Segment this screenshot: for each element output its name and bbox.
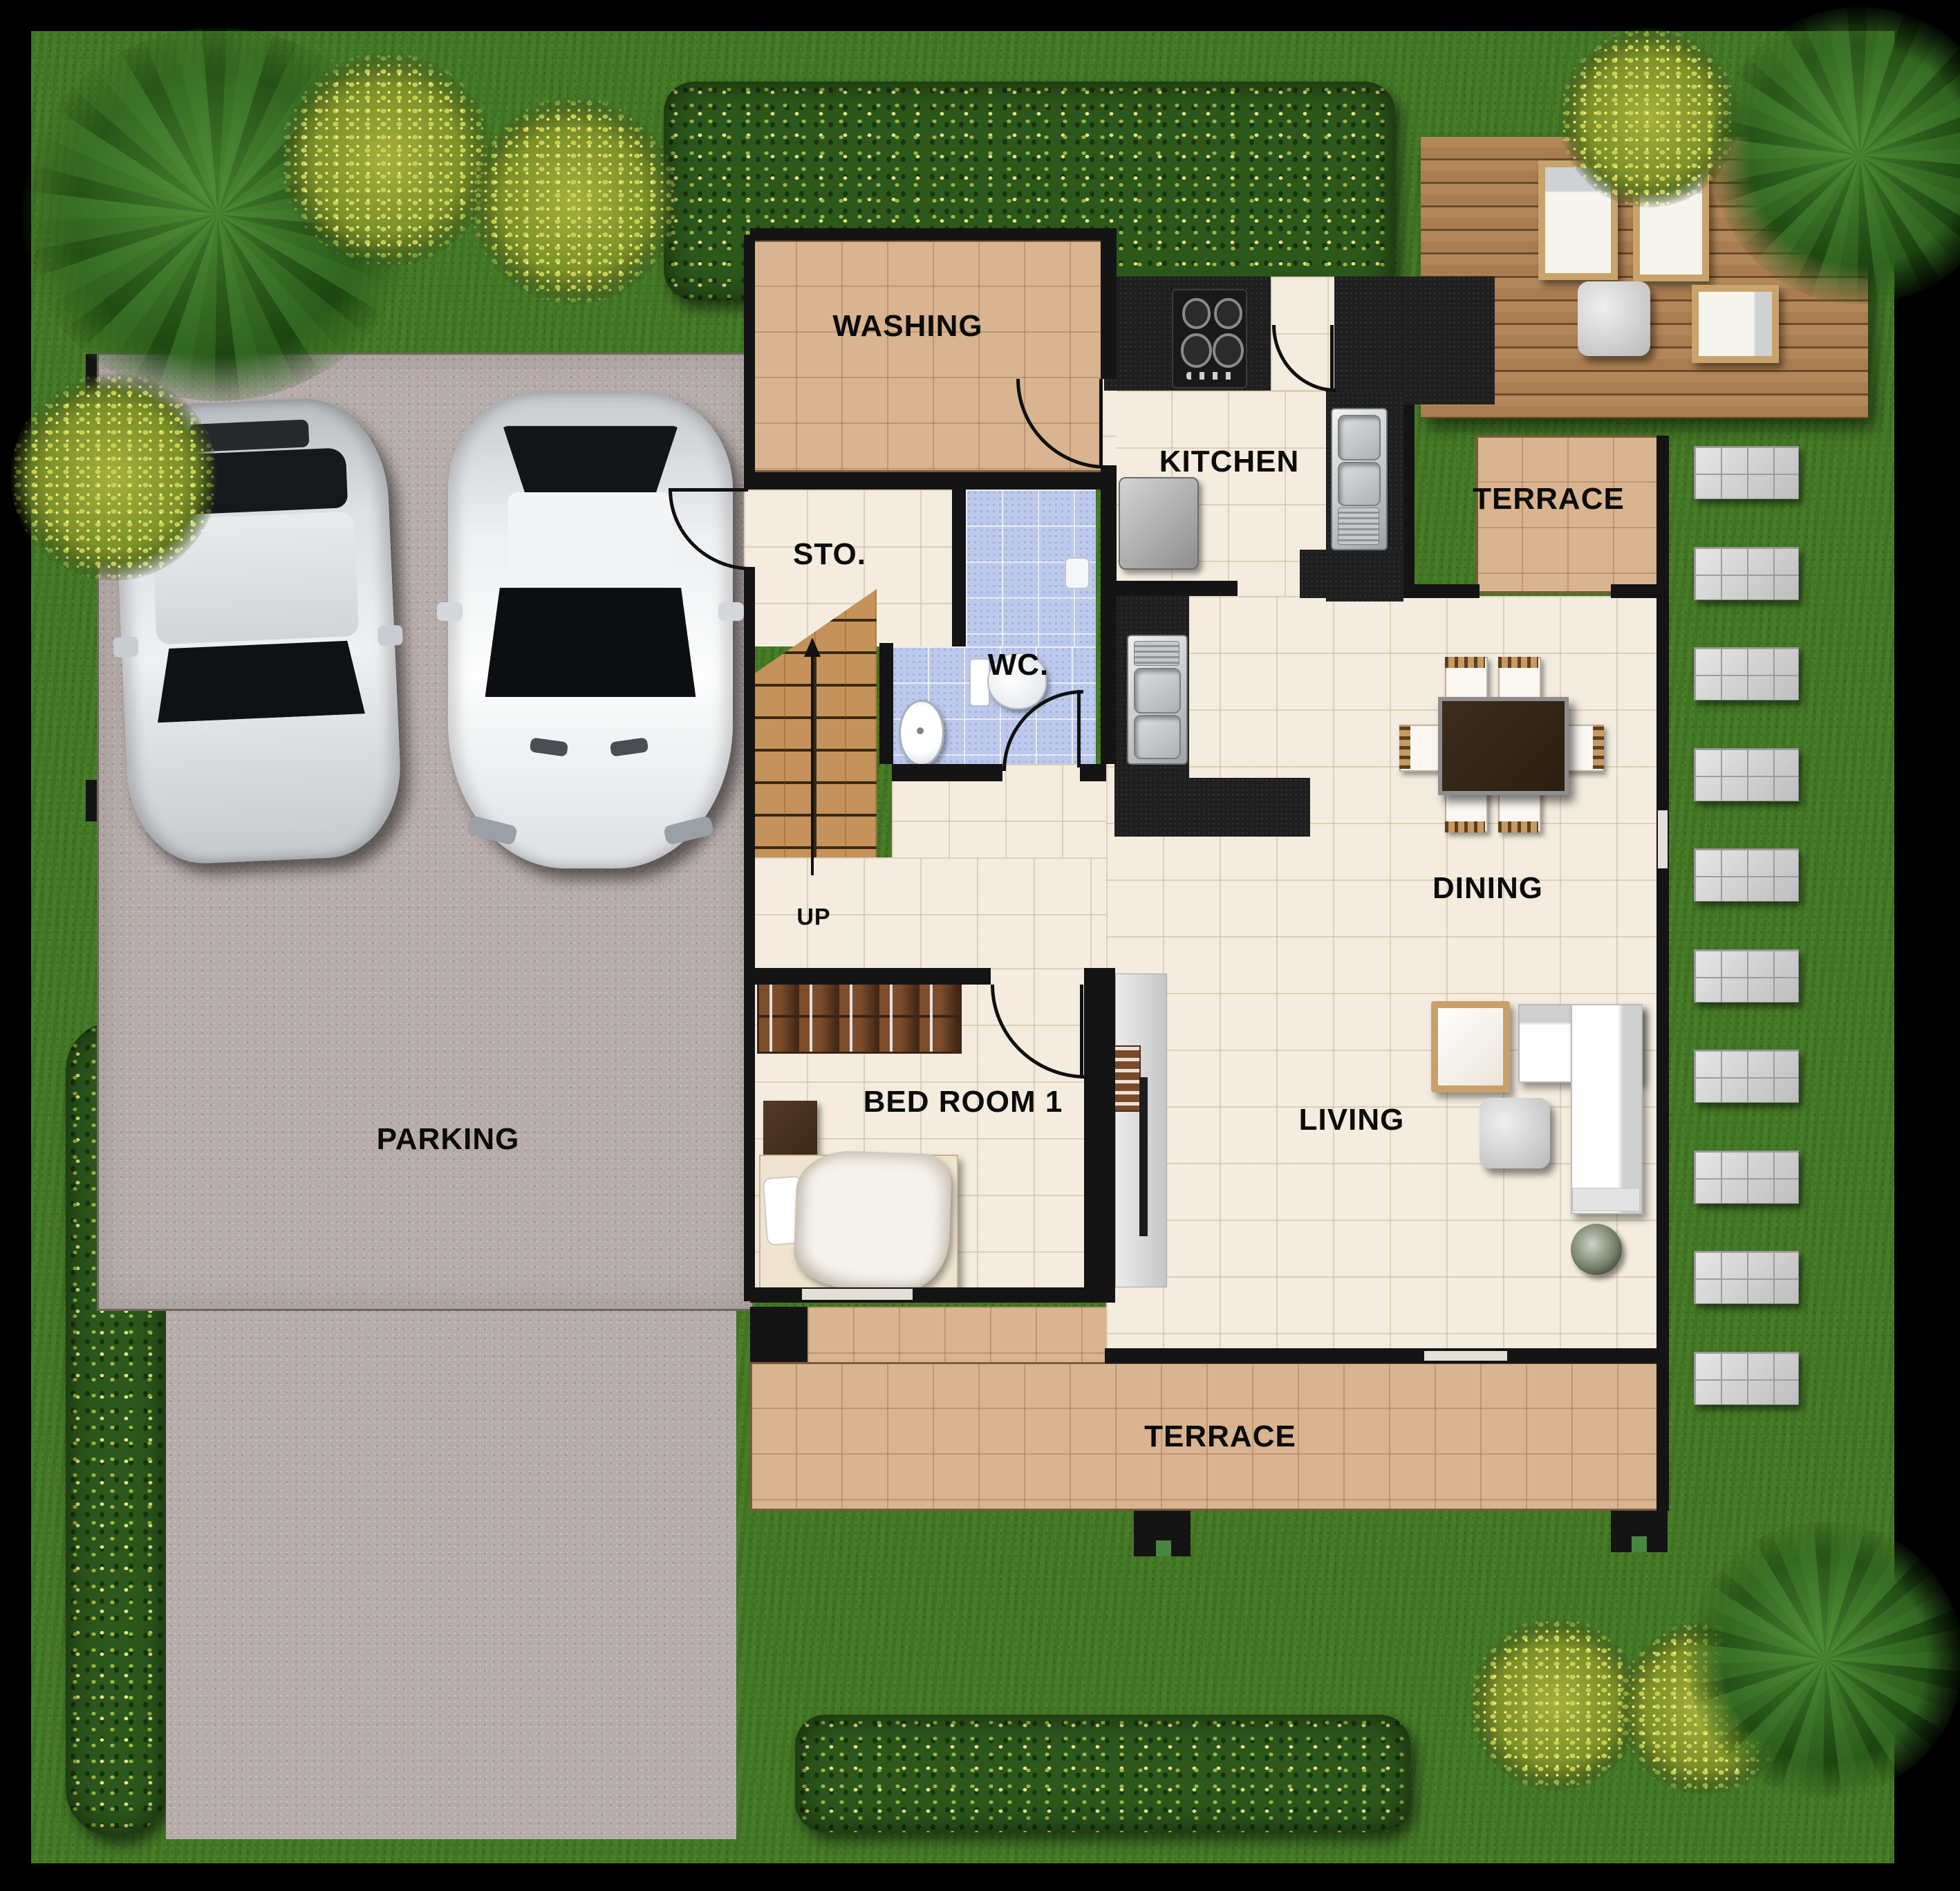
wardrobe <box>757 982 962 1054</box>
hob-burner-2 <box>1214 298 1243 328</box>
label-kitchen: KITCHEN <box>1159 445 1300 479</box>
potted-plant <box>1571 1224 1622 1275</box>
hob-knobs <box>1186 372 1233 380</box>
dining-chair-6 <box>1562 725 1604 772</box>
window-living <box>1424 1351 1507 1361</box>
door-leaf-storage-exterior <box>669 488 748 492</box>
hob-burner-4 <box>1213 333 1244 368</box>
dining-chair-1 <box>1445 657 1488 702</box>
stepping-stone-8 <box>1694 1151 1799 1204</box>
coffee-table <box>1480 1098 1550 1168</box>
stairs-arrow-line <box>811 655 814 875</box>
window-bedroom <box>802 1289 913 1300</box>
dining-table <box>1438 697 1569 795</box>
sofa-end-armrest <box>1572 1188 1640 1211</box>
kitchen-sink-right <box>1331 408 1388 550</box>
stairs-arrow-head <box>804 637 821 657</box>
wall-shelf <box>1065 557 1090 589</box>
bush-yellow-bottom-1 <box>1469 1618 1642 1791</box>
wall-left-lower <box>744 567 755 1301</box>
island-sink <box>1127 635 1188 765</box>
car-sports-windshield <box>485 588 696 697</box>
bed-duvet <box>793 1149 953 1293</box>
hob-burner-3 <box>1181 333 1213 368</box>
kitchen-hob <box>1172 289 1247 389</box>
wall-kitchen-left-lower <box>1101 465 1117 764</box>
label-bedroom: BED ROOM 1 <box>864 1085 1063 1119</box>
car-sedan-windshield <box>154 640 365 723</box>
sink-basin <box>1134 715 1181 759</box>
label-living: LIVING <box>1299 1103 1405 1137</box>
terrace-corner-wall <box>750 1307 808 1362</box>
bush-yellow-top-1 <box>280 52 494 266</box>
label-washing: WASHING <box>832 309 982 344</box>
label-parking: PARKING <box>377 1122 520 1157</box>
door-leaf-washing <box>1099 379 1103 465</box>
dining-chair-5 <box>1399 725 1441 772</box>
chimney-block <box>1403 277 1495 404</box>
stepping-stone-9 <box>1694 1251 1799 1304</box>
wall-bedroom-top <box>750 968 991 985</box>
deck-lounger-3 <box>1692 285 1779 363</box>
label-dining: DINING <box>1432 871 1543 906</box>
car-sports-rear-window <box>499 426 682 492</box>
bush-yellow-top-2 <box>470 97 678 304</box>
wall-bedroom-living <box>1084 968 1115 1287</box>
label-storage: STO. <box>793 537 866 572</box>
kitchen-counter-top-2 <box>1334 277 1403 391</box>
sink-drainboard <box>1134 641 1179 666</box>
terrace-column-2-notch <box>1632 1536 1647 1552</box>
car-sedan-mirror-right <box>377 624 403 646</box>
driveway <box>166 1307 736 1839</box>
label-terrace-right: TERRACE <box>1473 482 1625 516</box>
kitchen-corner-block <box>1300 550 1415 598</box>
parking-edge-mark-2 <box>86 780 97 821</box>
car-sports <box>448 393 733 868</box>
stepping-stone-10 <box>1694 1352 1799 1405</box>
wall-washing-top <box>750 228 1104 241</box>
car-sports-roof <box>508 492 673 588</box>
bush-yellow-left <box>10 373 218 581</box>
stepping-stone-6 <box>1694 949 1799 1003</box>
wall-living-bottom <box>1105 1348 1669 1363</box>
window-right-wall <box>1658 810 1668 868</box>
sink-basin <box>1338 462 1381 506</box>
stairs-rail <box>814 650 816 857</box>
deck-table <box>1578 281 1650 356</box>
wall-wc-bottom-left <box>892 764 1002 781</box>
nightstand <box>763 1101 817 1162</box>
dining-chair-2 <box>1498 657 1541 702</box>
door-leaf-kitchen-back <box>1330 325 1334 389</box>
armchair <box>1431 1001 1510 1092</box>
sofa-right-arm <box>1571 1004 1643 1214</box>
tv <box>1139 1077 1148 1236</box>
fridge <box>1119 477 1199 570</box>
wall-wc-bottom-right <box>1080 764 1106 781</box>
stepping-stone-3 <box>1694 647 1799 700</box>
stepping-stone-7 <box>1694 1050 1799 1103</box>
wall-kitchen-bottom <box>1114 581 1238 596</box>
basin-drain-dot <box>917 727 924 734</box>
stepping-stone-5 <box>1694 848 1799 902</box>
wall-greatroom-top-left <box>1403 584 1480 598</box>
sink-basin <box>1134 668 1181 714</box>
sink-drainboard <box>1338 507 1379 545</box>
wall-stairs-right <box>879 643 893 764</box>
stepping-stone-4 <box>1694 748 1799 801</box>
car-sports-mirror-left <box>437 602 463 622</box>
wall-kitchen-left-upper <box>1101 228 1117 379</box>
hedge-bottom <box>795 1715 1410 1832</box>
hob-burner-1 <box>1182 298 1211 328</box>
wall-washing-storage <box>750 472 1106 490</box>
door-leaf-bedroom <box>1080 985 1083 1075</box>
car-sedan-mirror-left <box>113 636 138 658</box>
stepping-stone-2 <box>1694 547 1799 600</box>
label-stairs-up: UP <box>796 904 830 931</box>
terrace-column-1-notch <box>1156 1540 1171 1556</box>
door-leaf-wc <box>1077 690 1081 767</box>
terrace-bottom-step <box>808 1307 1113 1362</box>
bush-yellow-deck <box>1559 28 1739 207</box>
site-plan: WASHING KITCHEN STO. WC. TERRACE DINING … <box>0 0 1960 1891</box>
car-sports-mirror-right <box>718 602 744 622</box>
sink-basin <box>1338 415 1381 460</box>
wall-storage-wc <box>952 490 966 646</box>
stepping-stone-1 <box>1694 446 1799 499</box>
island-counter-horizontal <box>1114 778 1310 837</box>
wall-left-upper <box>744 235 755 490</box>
label-wc: WC. <box>988 648 1049 682</box>
tree-conifer-bottom-right <box>1687 1521 1960 1798</box>
label-terrace-bottom: TERRACE <box>1144 1419 1296 1454</box>
wall-chimney-side <box>1403 404 1415 584</box>
